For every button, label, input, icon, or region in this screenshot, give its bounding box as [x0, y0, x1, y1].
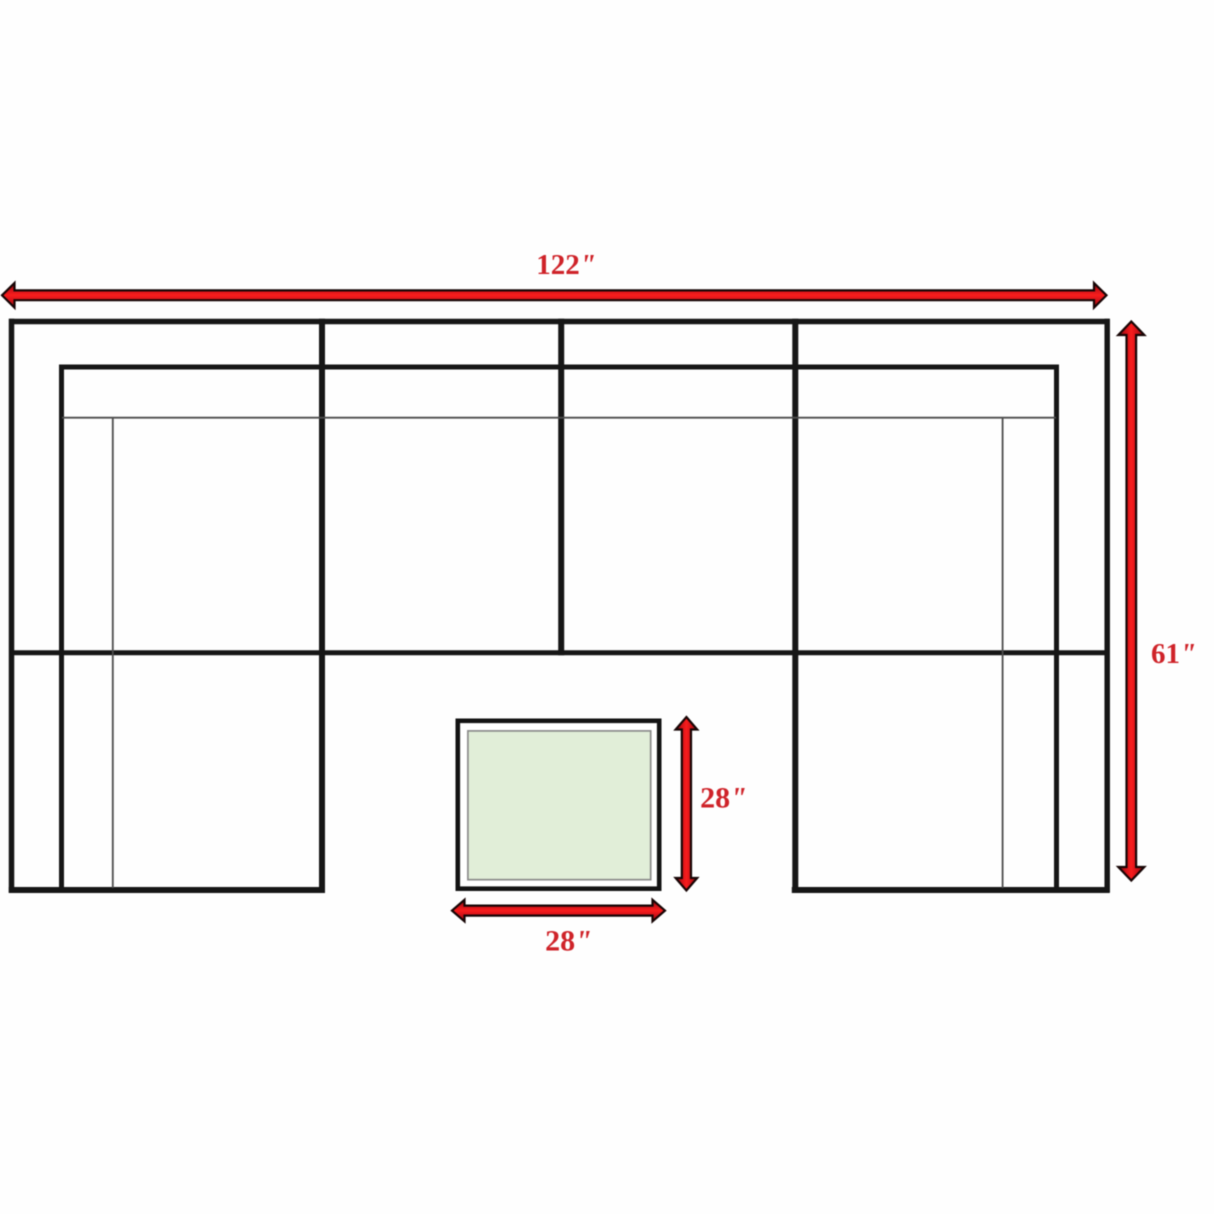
svg-text:122": 122" — [536, 249, 596, 281]
svg-text:28": 28" — [700, 782, 747, 815]
svg-text:61": 61" — [1151, 638, 1196, 670]
svg-text:28": 28" — [545, 925, 592, 958]
